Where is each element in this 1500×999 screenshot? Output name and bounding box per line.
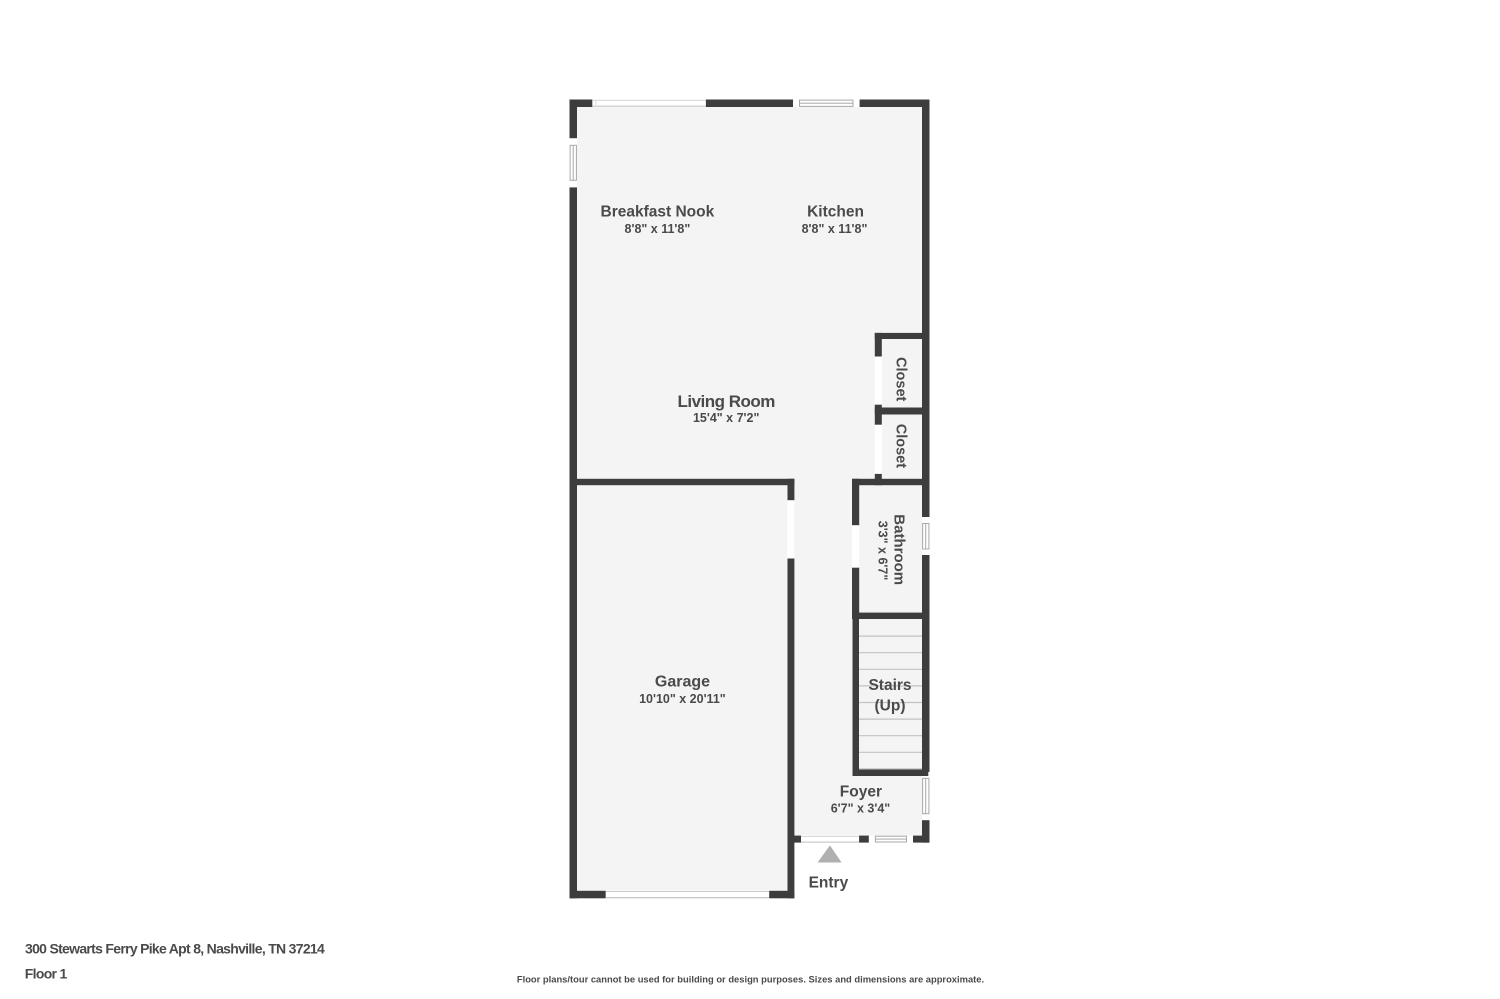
- svg-text:Bathroom: Bathroom: [891, 514, 908, 585]
- svg-text:(Up): (Up): [875, 697, 906, 714]
- svg-text:Stairs: Stairs: [868, 677, 911, 694]
- svg-text:6'7" x 3'4": 6'7" x 3'4": [831, 802, 891, 816]
- svg-text:15'4" x 7'2": 15'4" x 7'2": [693, 411, 760, 425]
- svg-text:Floor 1: Floor 1: [25, 966, 68, 982]
- svg-text:10'10" x 20'11": 10'10" x 20'11": [639, 692, 726, 706]
- svg-text:300 Stewarts Ferry Pike Apt 8,: 300 Stewarts Ferry Pike Apt 8, Nashville…: [25, 941, 325, 957]
- svg-text:8'8" x 11'8": 8'8" x 11'8": [802, 222, 868, 236]
- svg-text:Living Room: Living Room: [677, 392, 775, 411]
- svg-text:Closet: Closet: [892, 357, 908, 401]
- svg-text:3'3" x 6'7": 3'3" x 6'7": [876, 521, 890, 581]
- svg-text:Kitchen: Kitchen: [807, 203, 864, 220]
- svg-text:8'8" x 11'8": 8'8" x 11'8": [625, 222, 691, 236]
- svg-text:Entry: Entry: [809, 874, 849, 891]
- svg-text:Closet: Closet: [892, 424, 908, 468]
- svg-text:Foyer: Foyer: [840, 783, 882, 800]
- svg-text:Breakfast Nook: Breakfast Nook: [601, 203, 715, 220]
- svg-text:Floor plans/tour cannot be use: Floor plans/tour cannot be used for buil…: [517, 974, 984, 985]
- svg-text:Garage: Garage: [655, 673, 710, 690]
